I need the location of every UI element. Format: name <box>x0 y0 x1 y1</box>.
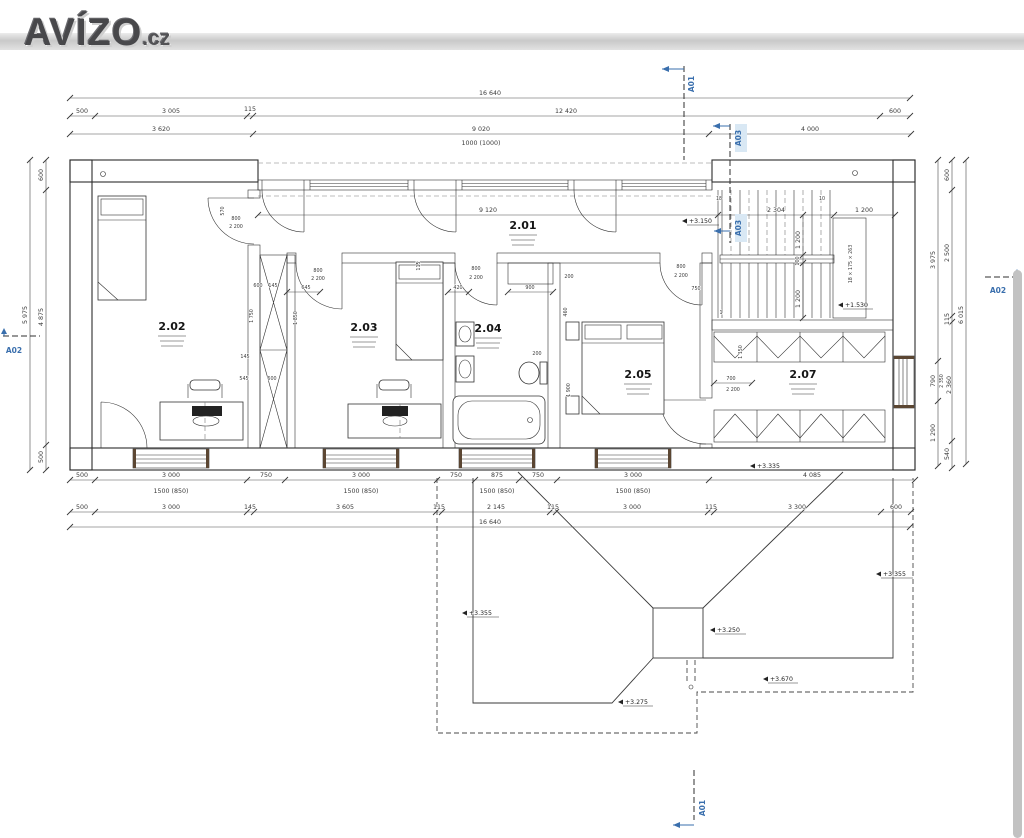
dim: 645 <box>301 285 310 291</box>
page: AVÍZO.cz <box>0 0 1024 838</box>
dim: 800 <box>231 216 240 222</box>
svg-text:+3.355: +3.355 <box>469 610 492 617</box>
partition-203-top <box>342 253 455 263</box>
dim: 800 <box>313 268 322 274</box>
partition-202 <box>248 245 260 448</box>
dim: 600 <box>38 169 45 181</box>
dim: 6 015 <box>958 306 965 324</box>
bathtub <box>453 396 545 444</box>
dim: 600 <box>253 283 262 289</box>
dim: 2 200 <box>469 275 483 281</box>
dim: 3 000 <box>162 504 180 511</box>
bed-203 <box>396 262 443 360</box>
window-bottom-1 <box>133 449 209 468</box>
roof-hips <box>518 472 843 608</box>
svg-text:A03: A03 <box>734 130 743 146</box>
dim: 3 005 <box>162 108 180 115</box>
roof-chimney <box>653 608 703 658</box>
window-jambs <box>258 180 712 190</box>
dim: 2 145 <box>487 504 505 511</box>
nightstand <box>566 396 579 414</box>
stair-number: 18 <box>716 196 722 202</box>
dim: 750 <box>691 286 700 292</box>
dim: 145 <box>244 504 256 511</box>
dim: 3 620 <box>152 126 170 133</box>
dim: 145 <box>240 354 249 360</box>
dim-window-spec: 1000 (1000) <box>462 140 501 147</box>
dim: 1 900 <box>566 383 572 397</box>
dim: 790 <box>930 375 937 387</box>
dim: 2 200 <box>229 224 243 230</box>
dimensions-corridor: 9 120 2 304 1 200 1 200 100 1 200 <box>255 207 898 321</box>
dim: 2 350 <box>939 374 945 388</box>
wall-right <box>893 160 915 470</box>
dim: 9 020 <box>472 126 490 133</box>
dim: 16 640 <box>479 90 501 97</box>
svg-text:+3.355: +3.355 <box>883 571 906 578</box>
dim: 200 <box>532 351 541 357</box>
dim: 115 <box>416 261 422 270</box>
window-bottom-2 <box>323 449 399 468</box>
dim: 1 200 <box>855 207 873 214</box>
dim: 2 200 <box>674 273 688 279</box>
partition-204-top <box>497 253 660 263</box>
dim: 1 750 <box>249 309 255 323</box>
svg-text:+3.150: +3.150 <box>689 218 712 225</box>
partition <box>248 190 260 198</box>
dim: 2 304 <box>767 207 785 214</box>
wall-left <box>70 160 92 470</box>
partition-stair-207 <box>712 320 893 330</box>
dim: 875 <box>491 472 503 479</box>
room-label-201: 2.01 <box>509 219 536 232</box>
stair-treads-lower <box>722 263 830 318</box>
roof-dashed-detail <box>687 660 695 684</box>
dim: 115 <box>433 504 445 511</box>
dim: 500 <box>76 108 88 115</box>
dim: 9 120 <box>479 207 497 214</box>
wardrobe-207-bottom <box>714 410 885 442</box>
desk-203 <box>348 404 441 438</box>
level-3250: +3.250 <box>710 627 746 634</box>
svg-text:A02: A02 <box>990 286 1006 295</box>
dim: 800 <box>471 266 480 272</box>
dim: 750 <box>450 472 462 479</box>
level-3275: +3.275 <box>618 699 653 706</box>
glazed-band <box>258 180 712 190</box>
dim: 500 <box>76 504 88 511</box>
svg-text:+1.530: +1.530 <box>845 302 868 309</box>
dim: 750 <box>260 472 272 479</box>
svg-text:+3.335: +3.335 <box>757 463 780 470</box>
svg-text:+3.250: +3.250 <box>717 627 740 634</box>
dim: 115 <box>547 504 559 511</box>
dim: 3 975 <box>930 251 937 269</box>
dim: 200 <box>564 274 573 280</box>
dim: 540 <box>944 448 951 460</box>
dim: 800 <box>676 264 685 270</box>
level-3355-left: +3.355 <box>462 610 499 617</box>
dim: 3 000 <box>624 472 642 479</box>
dim: 1 850 <box>293 311 299 325</box>
wall-top-left <box>70 160 258 182</box>
dim: 3 000 <box>623 504 641 511</box>
dim: 3 000 <box>162 472 180 479</box>
roof-eave-outline <box>437 478 913 733</box>
dim-window-spec: 1500 (850) <box>616 488 651 495</box>
partition-closet <box>287 255 295 448</box>
roof-plan <box>437 472 913 733</box>
dim: 600 <box>890 504 902 511</box>
dim: 570 <box>220 206 226 215</box>
wall-vent-circle <box>853 171 858 176</box>
dim: 1 150 <box>738 345 744 359</box>
dim-window-spec: 1500 (850) <box>480 488 515 495</box>
dim: 1 200 <box>795 231 802 249</box>
dim: 115 <box>244 106 256 113</box>
desk-202 <box>160 402 243 440</box>
dim: 500 <box>38 451 45 463</box>
room-label-204: 2.04 <box>474 322 501 335</box>
dim: 4 875 <box>38 308 45 326</box>
dimensions-bottom: 500 3 000 750 3 000 750 875 750 3 000 4 … <box>67 472 918 530</box>
window-bottom-4 <box>595 449 671 468</box>
room-label-207: 2.07 <box>789 368 816 381</box>
dim: 2 500 <box>944 244 951 262</box>
wall-top-right <box>712 160 915 182</box>
level-markers: +3.150 +1.530 +3.335 +3.355 +3.355 +3.25… <box>462 218 913 706</box>
floor-plan-drawing: 18 10 1 18 × 175 × 263 <box>0 0 1024 838</box>
stair-number: 1 <box>719 310 722 316</box>
level-3355-right: +3.355 <box>876 571 913 578</box>
staircase: 18 10 1 18 × 175 × 263 <box>716 190 866 318</box>
toilet <box>519 362 547 384</box>
dim: 545 <box>239 376 248 382</box>
dim: 1 290 <box>930 424 937 442</box>
svg-text:A02: A02 <box>6 346 22 355</box>
section-markers: A01 A03 A03 A01 A0 <box>1 66 1020 828</box>
svg-text:A01: A01 <box>687 76 696 92</box>
dim: 2 360 <box>946 376 953 394</box>
level-1530: +1.530 <box>838 302 873 309</box>
avizo-logo: AVÍZO.cz <box>24 12 170 55</box>
dim-window-spec: 1500 (850) <box>154 488 189 495</box>
dim: 5 975 <box>22 306 29 324</box>
dimensions-left: 600 4 875 500 5 975 <box>22 157 49 473</box>
stair-formula: 18 × 175 × 263 <box>848 245 854 284</box>
section-a01-bottom: A01 <box>673 770 707 828</box>
svg-text:+3.275: +3.275 <box>625 699 648 706</box>
dim: 4 000 <box>801 126 819 133</box>
dim: 750 <box>532 472 544 479</box>
logo-brand: AVÍZO <box>24 12 142 54</box>
svg-text:+3.670: +3.670 <box>770 676 793 683</box>
wall-vent-circle <box>101 172 106 177</box>
dim: 460 <box>563 307 569 316</box>
partition-seg <box>702 253 712 263</box>
dim: 420 <box>453 285 462 291</box>
room-label-205: 2.05 <box>624 368 651 381</box>
scrollbar-thumb[interactable] <box>1013 270 1022 838</box>
dim: 900 <box>525 285 534 291</box>
svg-text:A03: A03 <box>734 220 743 236</box>
section-a02-left: A02 <box>1 328 40 355</box>
sink <box>456 356 474 382</box>
corridor-glazed-wall <box>258 163 712 232</box>
dim: 3 605 <box>336 504 354 511</box>
dim: 600 <box>944 169 951 181</box>
dim: 4 085 <box>803 472 821 479</box>
interior-dimensions: 570 800 2 200 800 2 200 800 2 200 800 2 … <box>220 206 755 396</box>
window-right <box>894 356 914 408</box>
room-label-203: 2.03 <box>350 321 377 334</box>
dim: 16 640 <box>479 519 501 526</box>
chair-203 <box>377 380 411 398</box>
level-3150: +3.150 <box>682 218 719 225</box>
shower <box>508 263 553 284</box>
svg-text:A01: A01 <box>698 800 707 816</box>
dim: 3 000 <box>352 472 370 479</box>
dim: 3 300 <box>788 504 806 511</box>
level-3670: +3.670 <box>763 676 798 683</box>
dimensions-right: 3 975 790 1 290 600 2 500 115 2 350 2 36… <box>930 157 969 471</box>
dim: 12 420 <box>555 108 577 115</box>
stair-number: 10 <box>819 196 825 202</box>
dim: 500 <box>76 472 88 479</box>
dim-window-spec: 1500 (850) <box>344 488 379 495</box>
dim: 600 <box>267 376 276 382</box>
roof-vent-circle <box>689 685 693 689</box>
bed-202 <box>98 196 146 300</box>
room-label-202: 2.02 <box>158 320 185 333</box>
dim: 115 <box>944 313 951 325</box>
dim: 2 200 <box>726 387 740 393</box>
dim: 600 <box>889 108 901 115</box>
dimensions-top: 16 640 500 3 005 115 12 420 600 3 620 9 … <box>67 90 914 147</box>
level-3335: +3.335 <box>750 463 785 470</box>
dim: 700 <box>726 376 735 382</box>
logo-tld: .cz <box>142 27 170 50</box>
partition-seg <box>287 253 296 263</box>
section-a01-top: A01 <box>662 66 696 160</box>
dim: 145 <box>268 283 277 289</box>
partition-seg <box>700 444 712 448</box>
dim: 115 <box>705 504 717 511</box>
dim: 2 200 <box>311 276 325 282</box>
window-glazing-lines <box>310 184 706 187</box>
door-202-balcony <box>101 402 147 448</box>
chair-202 <box>188 380 222 398</box>
dim: 1 200 <box>795 290 802 308</box>
dim: 100 <box>795 256 801 265</box>
door-205-207 <box>660 400 706 444</box>
window-bottom-3 <box>459 449 535 468</box>
sink <box>456 322 474 346</box>
bed-205 <box>582 322 664 414</box>
nightstand <box>566 322 579 340</box>
